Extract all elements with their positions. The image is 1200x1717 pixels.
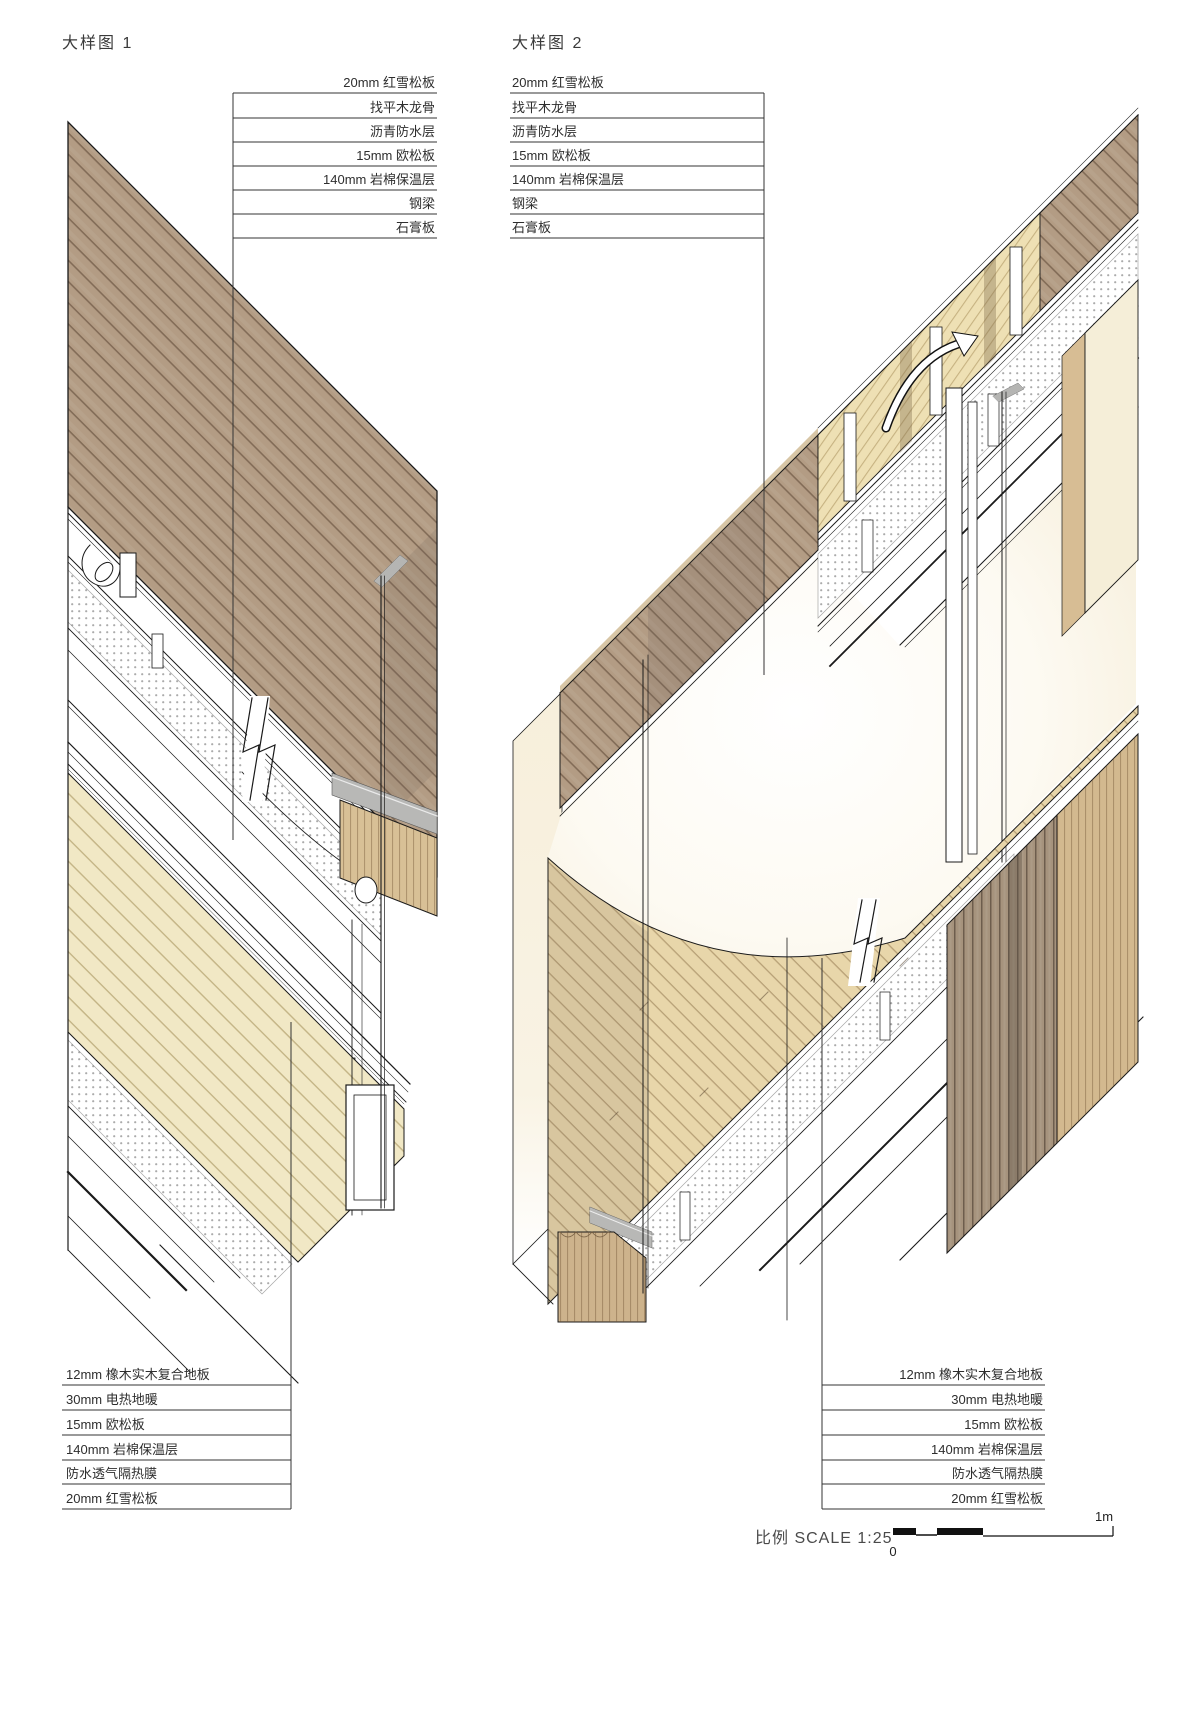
d1-floor-layer-label: 12mm 橡木实木复合地板 <box>66 1367 210 1382</box>
d2-right-fascia <box>1057 734 1138 1143</box>
sheet-svg: 大样图 1 大样图 2 20mm 红雪松板 找平木龙骨 沥青防水层 15mm 欧… <box>0 0 1200 1717</box>
d1-floor-labels: 12mm 橡木实木复合地板 30mm 电热地暖 15mm 欧松板 140mm 岩… <box>66 1367 210 1506</box>
d1-floor-layer-label: 140mm 岩棉保温层 <box>66 1442 178 1457</box>
d1-floor-layer-label: 20mm 红雪松板 <box>66 1491 158 1506</box>
d1-roof-labels: 20mm 红雪松板 找平木龙骨 沥青防水层 15mm 欧松板 140mm 岩棉保… <box>323 75 435 235</box>
d2-roof-layer-label: 20mm 红雪松板 <box>512 75 604 90</box>
d1-floor-layer-label: 15mm 欧松板 <box>66 1417 145 1432</box>
detail-2-drawing <box>513 108 1143 1322</box>
d1-roof-layer-label: 沥青防水层 <box>370 124 435 139</box>
drawing-sheet: 大样图 1 大样图 2 20mm 红雪松板 找平木龙骨 沥青防水层 15mm 欧… <box>0 0 1200 1717</box>
d2-floor-layer-label: 140mm 岩棉保温层 <box>931 1442 1043 1457</box>
d1-gasket-circle <box>355 877 377 903</box>
detail-2-title: 大样图 2 <box>512 34 583 52</box>
d2-floor-layer-label: 30mm 电热地暖 <box>951 1392 1043 1407</box>
d2-wood-jamb <box>1062 333 1085 636</box>
d2-cream-pane <box>1085 280 1138 613</box>
scale-bar: 比例 SCALE 1:25 0 1m <box>755 1509 1113 1559</box>
d2-roof-layer-label: 找平木龙骨 <box>512 100 577 115</box>
d2-roof-layer-label: 140mm 岩棉保温层 <box>512 172 624 187</box>
d1-clip-2 <box>152 634 163 668</box>
d2-floor-labels: 12mm 橡木实木复合地板 30mm 电热地暖 15mm 欧松板 140mm 岩… <box>899 1367 1043 1506</box>
d2-roof-labels: 20mm 红雪松板 找平木龙骨 沥青防水层 15mm 欧松板 140mm 岩棉保… <box>512 75 624 235</box>
d2-slat-shadow <box>1008 850 1022 1192</box>
detail-1-drawing <box>68 122 437 1383</box>
d1-roof-layer-label: 钢梁 <box>409 196 435 211</box>
d1-clip-1 <box>120 553 136 597</box>
scale-end-label: 1m <box>1095 1509 1113 1524</box>
d1-roof-layer-label: 找平木龙骨 <box>370 100 435 115</box>
scale-bar-block-1 <box>893 1528 916 1535</box>
d1-roof-layer-label: 15mm 欧松板 <box>356 148 435 163</box>
d2-floor-layer-label: 防水透气隔热膜 <box>952 1466 1043 1481</box>
d2-roof-layer-label: 沥青防水层 <box>512 124 577 139</box>
scale-zero-label: 0 <box>889 1544 896 1559</box>
d1-outline-diag-2 <box>68 1250 190 1372</box>
d1-roof-layer-label: 140mm 岩棉保温层 <box>323 172 435 187</box>
d2-roof-layer-label: 15mm 欧松板 <box>512 148 591 163</box>
detail-1-title: 大样图 1 <box>62 34 133 52</box>
d1-floor-layer-label: 30mm 电热地暖 <box>66 1392 158 1407</box>
d2-roof-layer-label: 石膏板 <box>512 220 551 235</box>
d1-floor-layer-label: 防水透气隔热膜 <box>66 1466 157 1481</box>
d2-roof-layer-label: 钢梁 <box>512 196 538 211</box>
d1-roof-layer-label: 20mm 红雪松板 <box>343 75 435 90</box>
d1-window-frame <box>346 877 394 1215</box>
d2-floor-layer-label: 20mm 红雪松板 <box>951 1491 1043 1506</box>
scale-bar-block-2 <box>937 1528 983 1535</box>
d1-roof-layer-label: 石膏板 <box>396 220 435 235</box>
scale-label: 比例 SCALE 1:25 <box>755 1529 893 1547</box>
d2-floor-layer-label: 15mm 欧松板 <box>964 1417 1043 1432</box>
d2-floor-layer-label: 12mm 橡木实木复合地板 <box>899 1367 1043 1382</box>
